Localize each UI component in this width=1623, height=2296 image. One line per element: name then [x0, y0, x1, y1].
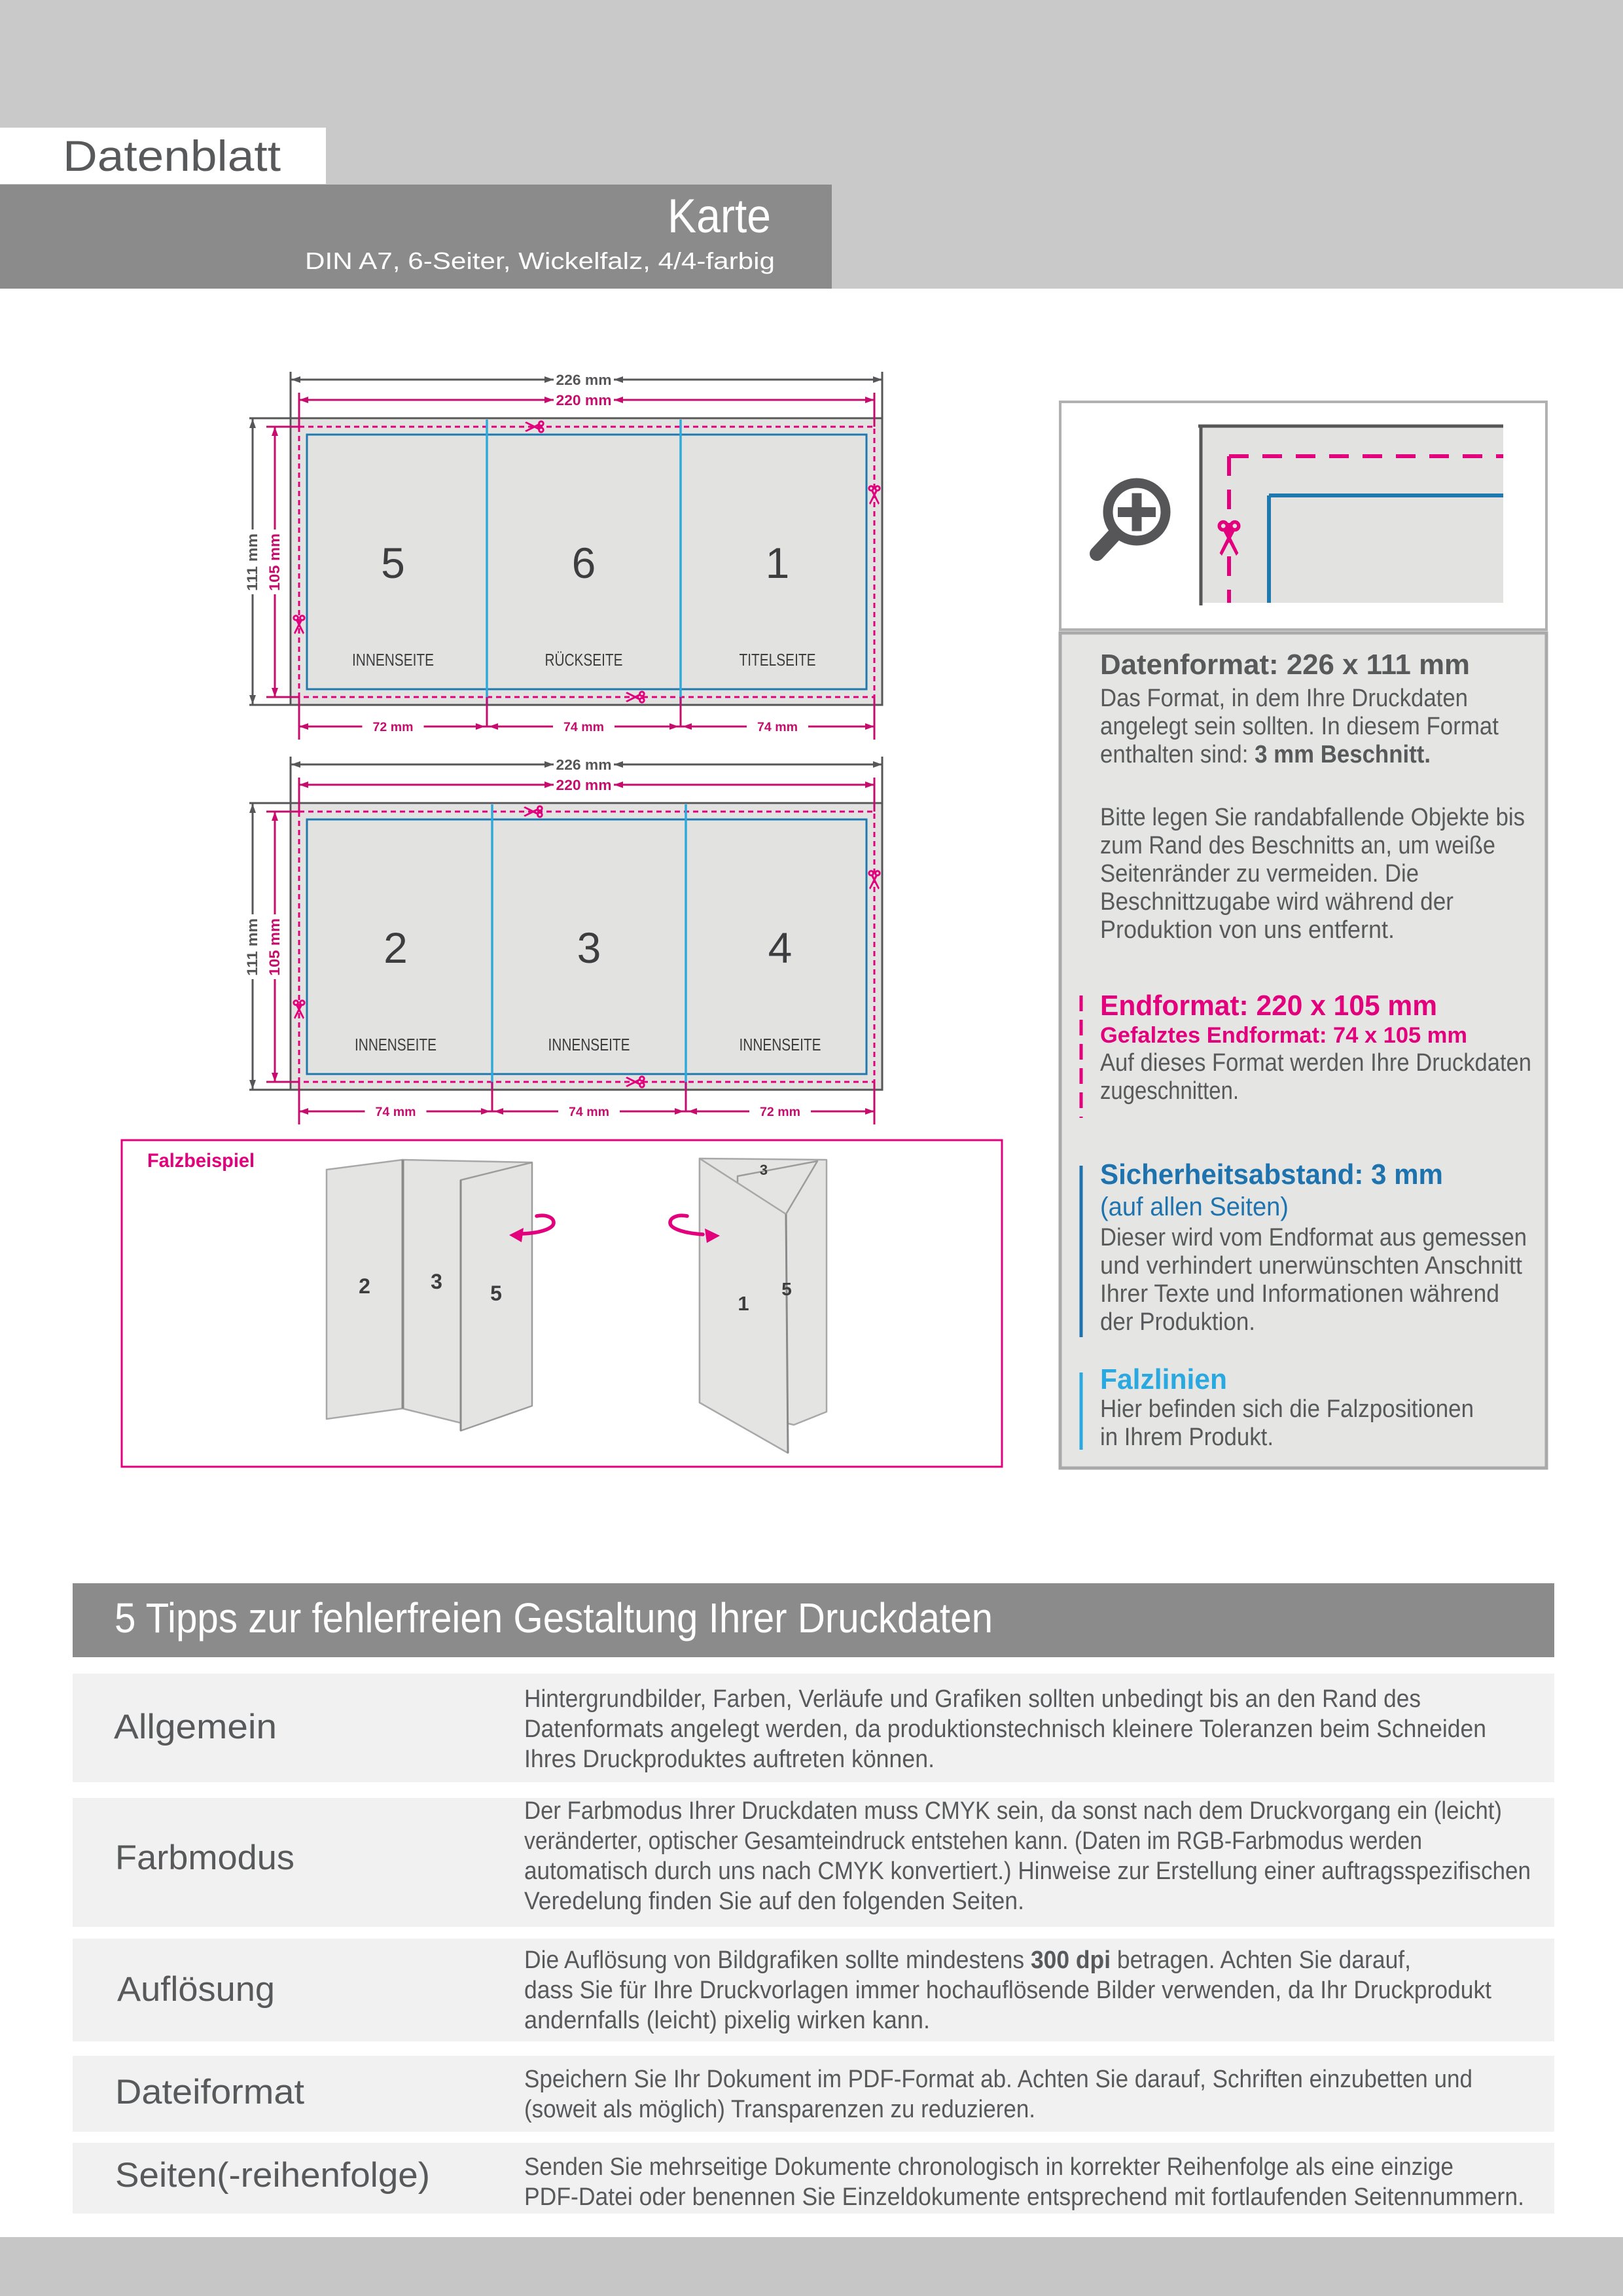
svg-text:Allgemein: Allgemein: [114, 1708, 277, 1746]
svg-text:Endformat: 220 x 105 mm: Endformat: 220 x 105 mm: [1100, 990, 1437, 1022]
svg-text:220 mm: 220 mm: [556, 392, 612, 408]
svg-text:Datenformat: 226 x 111 mm: Datenformat: 226 x 111 mm: [1100, 649, 1470, 681]
svg-text:5 Tipps zur fehlerfreien Gesta: 5 Tipps zur fehlerfreien Gestaltung Ihre…: [115, 1594, 993, 1641]
svg-text:Dieser wird vom Endformat aus: Dieser wird vom Endformat aus gemessen: [1100, 1224, 1527, 1251]
svg-text:Karte: Karte: [668, 190, 771, 243]
svg-text:veränderter, optischer Gesamte: veränderter, optischer Gesamteindruck en…: [524, 1827, 1422, 1855]
svg-text:105 mm: 105 mm: [266, 533, 283, 591]
svg-text:74 mm: 74 mm: [757, 721, 798, 734]
svg-text:Seitenränder zu vermeiden. Die: Seitenränder zu vermeiden. Die: [1100, 860, 1419, 888]
svg-text:3: 3: [760, 1162, 768, 1178]
svg-text:INNENSEITE: INNENSEITE: [740, 1035, 821, 1054]
svg-text:2: 2: [383, 924, 408, 972]
svg-text:72 mm: 72 mm: [760, 1105, 800, 1119]
svg-text:Auf dieses Format werden Ihre: Auf dieses Format werden Ihre Druckdaten: [1100, 1049, 1531, 1077]
svg-text:zugeschnitten.: zugeschnitten.: [1100, 1077, 1239, 1105]
svg-text:INNENSEITE: INNENSEITE: [355, 1035, 437, 1054]
svg-text:111 mm: 111 mm: [244, 918, 260, 976]
svg-text:und verhindert unerwünschten A: und verhindert unerwünschten Anschnitt: [1100, 1252, 1522, 1280]
svg-text:5: 5: [381, 539, 405, 587]
svg-text:Farbmodus: Farbmodus: [115, 1839, 294, 1877]
svg-text:226 mm: 226 mm: [556, 372, 612, 388]
svg-text:Produktion von uns entfernt.: Produktion von uns entfernt.: [1100, 916, 1395, 944]
svg-text:Seiten(-reihenfolge): Seiten(-reihenfolge): [115, 2156, 430, 2195]
svg-text:Auflösung: Auflösung: [117, 1970, 275, 2009]
svg-text:5: 5: [490, 1282, 502, 1305]
svg-text:zum Rand des Beschnitts an, um: zum Rand des Beschnitts an, um weiße: [1100, 832, 1495, 859]
svg-text:Das Format, in dem Ihre Druckd: Das Format, in dem Ihre Druckdaten: [1100, 685, 1468, 712]
svg-text:DIN A7, 6-Seiter, Wickelfalz,: DIN A7, 6-Seiter, Wickelfalz, 4/4-farbig: [305, 247, 775, 274]
svg-text:Gefalztes Endformat: 74 x 105: Gefalztes Endformat: 74 x 105 mm: [1100, 1023, 1467, 1048]
svg-text:Bitte legen Sie randabfallende: Bitte legen Sie randabfallende Objekte b…: [1100, 804, 1525, 831]
svg-text:Hier befinden sich die Falzpos: Hier befinden sich die Falzpositionen: [1100, 1395, 1474, 1423]
svg-text:enthalten sind: 3 mm Beschnitt: enthalten sind: 3 mm Beschnitt.: [1100, 741, 1431, 768]
svg-text:4: 4: [768, 924, 793, 972]
svg-text:226 mm: 226 mm: [556, 757, 612, 773]
svg-text:220 mm: 220 mm: [556, 777, 612, 793]
svg-text:INNENSEITE: INNENSEITE: [548, 1035, 630, 1054]
svg-text:in Ihrem Produkt.: in Ihrem Produkt.: [1100, 1424, 1274, 1451]
svg-text:(auf allen Seiten): (auf allen Seiten): [1100, 1193, 1289, 1221]
svg-text:1: 1: [766, 539, 790, 587]
svg-text:automatisch durch uns nach CMY: automatisch durch uns nach CMYK konverti…: [524, 1857, 1531, 1885]
svg-text:(soweit als möglich) Transpare: (soweit als möglich) Transparenzen zu re…: [524, 2096, 1035, 2123]
svg-text:Der Farbmodus Ihrer Druckdaten: Der Farbmodus Ihrer Druckdaten muss CMYK…: [524, 1797, 1502, 1825]
svg-text:Die Auflösung von Bildgrafiken: Die Auflösung von Bildgrafiken sollte mi…: [524, 1946, 1411, 1974]
svg-text:PDF-Datei oder benennen Sie Ei: PDF-Datei oder benennen Sie Einzeldokume…: [524, 2183, 1524, 2211]
svg-text:1: 1: [738, 1292, 749, 1315]
svg-text:Datenblatt: Datenblatt: [63, 132, 281, 180]
svg-text:74 mm: 74 mm: [376, 1105, 416, 1119]
svg-text:andernfalls (leicht) pixelig w: andernfalls (leicht) pixelig wirken kann…: [524, 2007, 930, 2034]
svg-text:angelegt sein sollten. In dies: angelegt sein sollten. In diesem Format: [1100, 713, 1499, 740]
svg-text:72 mm: 72 mm: [373, 721, 414, 734]
svg-text:Speichern Sie Ihr Dokument im: Speichern Sie Ihr Dokument im PDF-Format…: [524, 2066, 1472, 2093]
svg-text:2: 2: [359, 1274, 370, 1298]
svg-text:Senden Sie mehrseitige Dokumen: Senden Sie mehrseitige Dokumente chronol…: [524, 2153, 1454, 2181]
svg-text:der Produktion.: der Produktion.: [1100, 1308, 1255, 1336]
svg-text:Ihrer Texte und Informationen: Ihrer Texte und Informationen während: [1100, 1280, 1499, 1308]
svg-text:Falzlinien: Falzlinien: [1100, 1363, 1227, 1395]
svg-text:TITELSEITE: TITELSEITE: [740, 650, 816, 670]
svg-text:dass Sie für Ihre Druckvorlage: dass Sie für Ihre Druckvorlagen immer ho…: [524, 1977, 1491, 2004]
svg-text:Dateiformat: Dateiformat: [115, 2073, 304, 2111]
svg-text:Ihres Druckproduktes auftreten: Ihres Druckproduktes auftreten können.: [524, 1746, 935, 1773]
svg-text:105 mm: 105 mm: [266, 918, 283, 976]
svg-text:3: 3: [577, 924, 601, 972]
svg-text:INNENSEITE: INNENSEITE: [352, 650, 434, 670]
svg-text:3: 3: [431, 1270, 442, 1293]
svg-text:Veredelung finden Sie auf den: Veredelung finden Sie auf den folgenden …: [524, 1888, 1024, 1915]
svg-text:6: 6: [572, 539, 596, 587]
svg-text:RÜCKSEITE: RÜCKSEITE: [545, 650, 623, 670]
svg-text:Falzbeispiel: Falzbeispiel: [147, 1150, 255, 1172]
svg-text:Beschnittzugabe wird während d: Beschnittzugabe wird während der: [1100, 888, 1454, 916]
svg-text:74 mm: 74 mm: [563, 721, 604, 734]
svg-text:5: 5: [781, 1279, 792, 1299]
svg-text:111 mm: 111 mm: [244, 533, 260, 591]
svg-text:74 mm: 74 mm: [569, 1105, 609, 1119]
svg-text:Sicherheitsabstand: 3 mm: Sicherheitsabstand: 3 mm: [1100, 1158, 1443, 1191]
svg-text:Hintergrundbilder, Farben, Ver: Hintergrundbilder, Farben, Verläufe und …: [524, 1685, 1421, 1713]
svg-text:Datenformats angelegt werden,: Datenformats angelegt werden, da produkt…: [524, 1715, 1486, 1743]
